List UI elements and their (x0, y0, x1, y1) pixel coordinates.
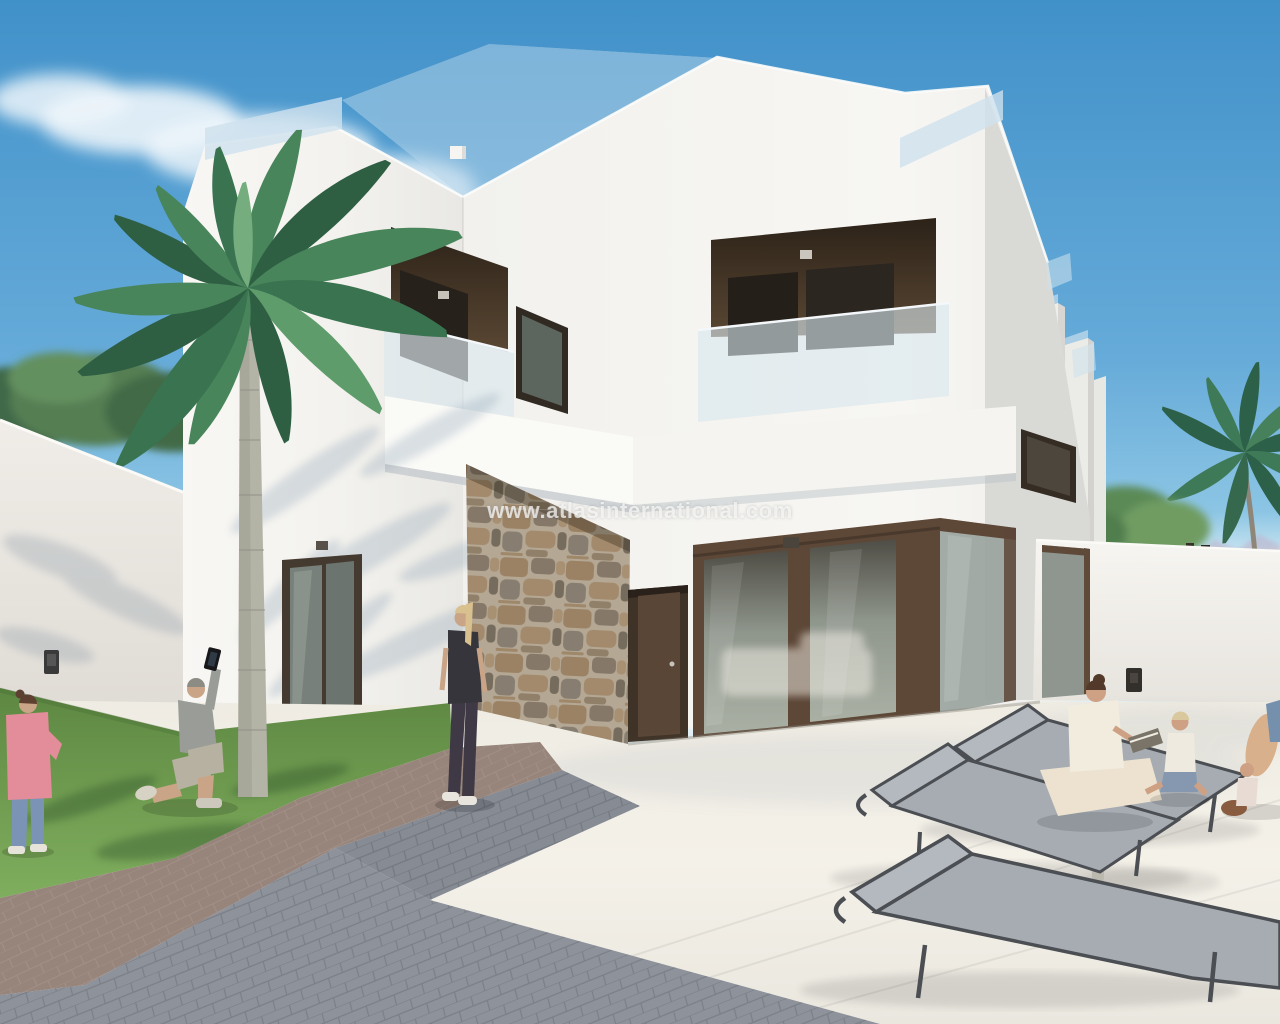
entrance-door (628, 585, 688, 742)
facade-vent (783, 537, 799, 548)
render-scene (0, 0, 1280, 1024)
balcony-right (698, 218, 949, 422)
right-courtyard-wall (1033, 540, 1280, 703)
architectural-render: www.atlasinternational.com (0, 0, 1280, 1024)
villa (183, 44, 1096, 756)
wall-window (1042, 545, 1090, 698)
